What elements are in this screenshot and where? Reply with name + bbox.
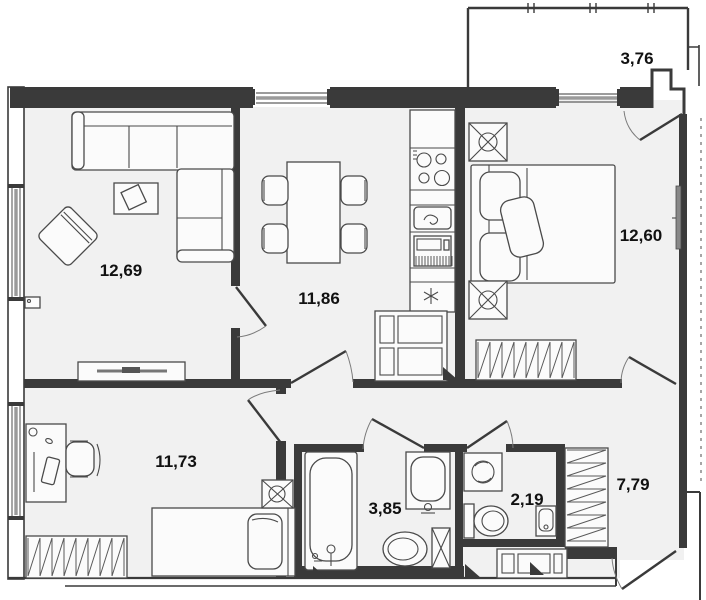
right-exterior <box>687 95 706 578</box>
wc-sink-icon <box>536 506 556 536</box>
area-label-hallway: 7,79 <box>616 475 649 494</box>
bathtub-icon <box>305 452 357 570</box>
area-label-bathroom: 3,85 <box>368 499 401 518</box>
washing-machine-icon <box>464 453 502 491</box>
area-label-wc: 2,19 <box>510 490 543 509</box>
area-label-kitchen: 11,86 <box>298 289 340 308</box>
nightstand-lamp-icon <box>262 480 293 508</box>
tv-stand-icon <box>78 362 185 381</box>
area-label-bedroom2: 11,73 <box>155 452 197 471</box>
nightstand-lamp-icon <box>469 281 507 319</box>
area-label-living: 12,69 <box>100 261 143 280</box>
coffee-table-icon <box>114 183 158 214</box>
oven-icon <box>414 236 451 266</box>
right-wall <box>679 114 687 548</box>
kitchen-window <box>251 88 331 107</box>
desk-icon <box>26 424 66 502</box>
floor-plan-page: 12,69 11,86 12,60 3,76 11,73 3,85 2,19 7… <box>0 0 706 600</box>
wc-toilet-icon <box>464 504 508 538</box>
kitchen-sink-icon <box>414 207 451 229</box>
nightstand-lamp-icon <box>469 123 507 161</box>
dining-table-icon <box>287 162 340 263</box>
area-label-bedroom: 12,60 <box>620 226 663 245</box>
hall-cabinet-icon <box>375 311 447 381</box>
bathroom-sink-icon <box>406 452 450 513</box>
single-bed-icon <box>152 508 295 576</box>
balcony-floor <box>470 10 686 96</box>
bathroom-toilet-icon <box>383 528 450 568</box>
area-label-balcony: 3,76 <box>620 49 653 68</box>
entry-exterior <box>620 560 684 600</box>
floor-plan: 12,69 11,86 12,60 3,76 11,73 3,85 2,19 7… <box>0 0 706 600</box>
wall-junction-box <box>25 297 40 308</box>
double-bed-icon <box>471 165 615 283</box>
